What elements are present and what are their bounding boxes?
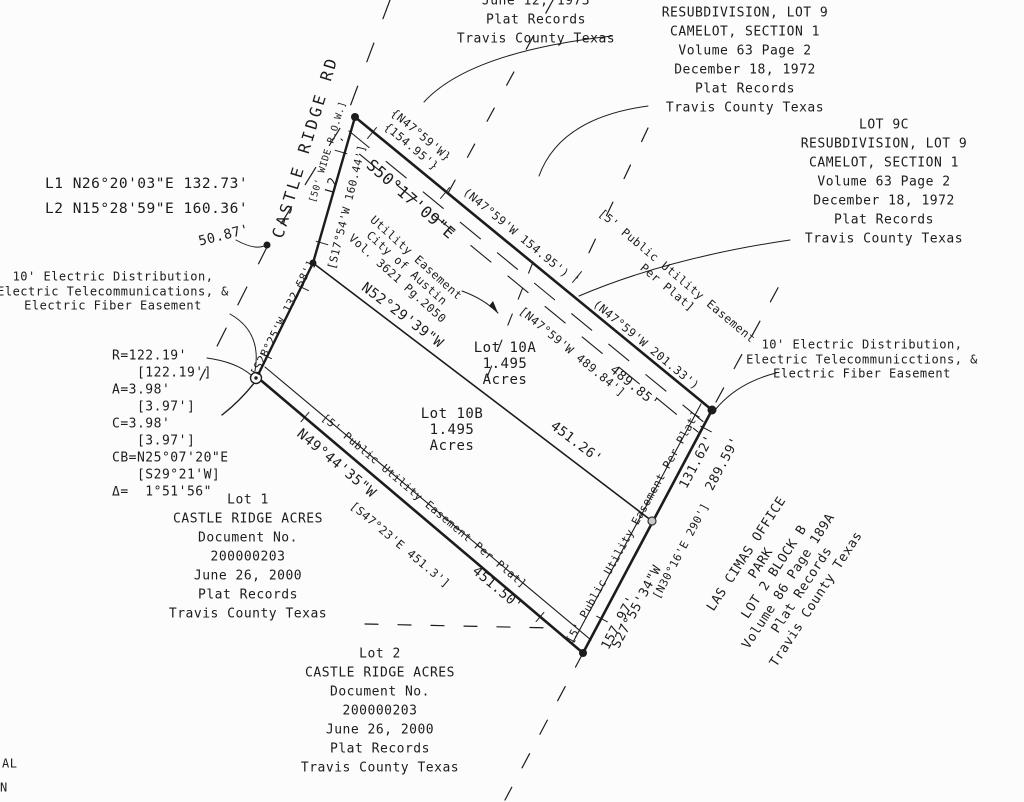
text-line: [3.97']	[112, 433, 229, 450]
text-line: June 26, 2000	[169, 567, 327, 586]
text-line: Travis County Texas	[457, 30, 615, 49]
text-line: December 18, 1972	[801, 192, 968, 211]
text-line: RESUBDIVISION, LOT 9	[801, 135, 968, 154]
corner-dot-east	[708, 406, 717, 415]
text-line: June 12, 1973	[457, 0, 615, 11]
text-line: C=3.98'	[112, 416, 229, 433]
leader-lot9b	[539, 106, 648, 176]
text-line: Travis County Texas	[801, 230, 968, 249]
block-lot2-note: Lot 2CASTLE RIDGE ACRESDocument No.20000…	[301, 645, 459, 778]
text-line: [3.97']	[112, 399, 229, 416]
text-line: Electric Telecommunicctions, &	[746, 352, 978, 367]
text-line: Document No.	[301, 683, 459, 702]
corner-dot-north	[351, 113, 359, 121]
text-line: CB=N25°07'20"E	[112, 450, 229, 467]
text-line: Lot 10A	[474, 340, 537, 356]
text-line: R=122.19'	[112, 348, 229, 365]
block-top-plat-note: June 12, 1973Plat RecordsTravis County T…	[457, 0, 615, 49]
text-line: A=3.98'	[112, 382, 229, 399]
text-line: 1.495	[421, 422, 484, 438]
text-line: Plat Records	[662, 80, 829, 99]
text-line: RESUBDIVISION, LOT 9	[662, 4, 829, 23]
text-line: CAMELOT, SECTION 1	[801, 154, 968, 173]
text-line: Electric Fiber Easement	[746, 366, 978, 381]
boundary-extension-south	[505, 653, 583, 800]
text-line: Volume 63 Page 2	[801, 173, 968, 192]
text-line: Acres	[421, 438, 484, 454]
text-line: Plat Records	[457, 11, 615, 30]
text-line: 200000203	[169, 548, 327, 567]
text-line: Plat Records	[801, 211, 968, 230]
plat-canvas: June 12, 1973Plat RecordsTravis County T…	[0, 0, 1024, 802]
text-line: L2 N15°28'59"E 160.36'	[45, 197, 248, 222]
block-lot9c-note: LOT 9CRESUBDIVISION, LOT 9CAMELOT, SECTI…	[801, 116, 968, 249]
block-lot1-note: Lot 1CASTLE RIDGE ACRESDocument No.20000…	[169, 491, 327, 624]
text-line: June 26, 2000	[301, 721, 459, 740]
text-line: Travis County Texas	[169, 605, 327, 624]
text-line: Travis County Texas	[301, 759, 459, 778]
text-line: Acres	[474, 372, 537, 388]
text-line: Plat Records	[301, 740, 459, 759]
text-line: Lot 10B	[421, 406, 484, 422]
text-line: 10' Electric Distribution,	[0, 269, 229, 284]
text-line: [122.19']	[112, 365, 229, 382]
text-line: Plat Records	[169, 586, 327, 605]
text-line: 1.495	[474, 356, 537, 372]
text-line: 10' Electric Distribution,	[746, 337, 978, 352]
block-lot10b-label: Lot 10B1.495Acres	[421, 406, 484, 454]
block-electric-easement-left: 10' Electric Distribution,Electric Telec…	[0, 269, 229, 313]
text-line: L1 N26°20'03"E 132.73'	[45, 172, 248, 197]
block-curve-data: R=122.19' [122.19']A=3.98' [3.97']C=3.98…	[112, 348, 229, 501]
text-line: Electric Telecommunications, &	[0, 284, 229, 299]
easement-point-circle	[648, 517, 656, 525]
text-line: [S29°21'W]	[112, 467, 229, 484]
text-line: Lot 1	[169, 491, 327, 510]
text-line: Volume 63 Page 2	[662, 42, 829, 61]
block-lot9b-note: LOT 9BRESUBDIVISION, LOT 9CAMELOT, SECTI…	[662, 0, 829, 118]
text-line: 200000203	[301, 702, 459, 721]
text-line: Lot 2	[301, 645, 459, 664]
text-line: CASTLE RIDGE ACRES	[169, 510, 327, 529]
block-electric-easement-right: 10' Electric Distribution,Electric Telec…	[746, 337, 978, 381]
lot1-lot2-division-dashed	[365, 624, 553, 628]
road-reference-dot	[264, 242, 271, 249]
text-line: Document No.	[169, 529, 327, 548]
block-lot10a-label: Lot 10A1.495Acres	[474, 340, 537, 388]
text-line: December 18, 1972	[662, 61, 829, 80]
arrowhead-city-easement	[489, 301, 498, 313]
block-line-table: L1 N26°20'03"E 132.73'L2 N15°28'59"E 160…	[45, 172, 248, 222]
text-line: CASTLE RIDGE ACRES	[301, 664, 459, 683]
corner-dot-south	[579, 649, 587, 657]
text-line: LOT 9C	[801, 116, 968, 135]
edge-text-fragment-2: N	[0, 779, 8, 798]
text-line: CAMELOT, SECTION 1	[662, 23, 829, 42]
text-line: Electric Fiber Easement	[0, 298, 229, 313]
edge-text-fragment-1: AL	[2, 755, 17, 774]
